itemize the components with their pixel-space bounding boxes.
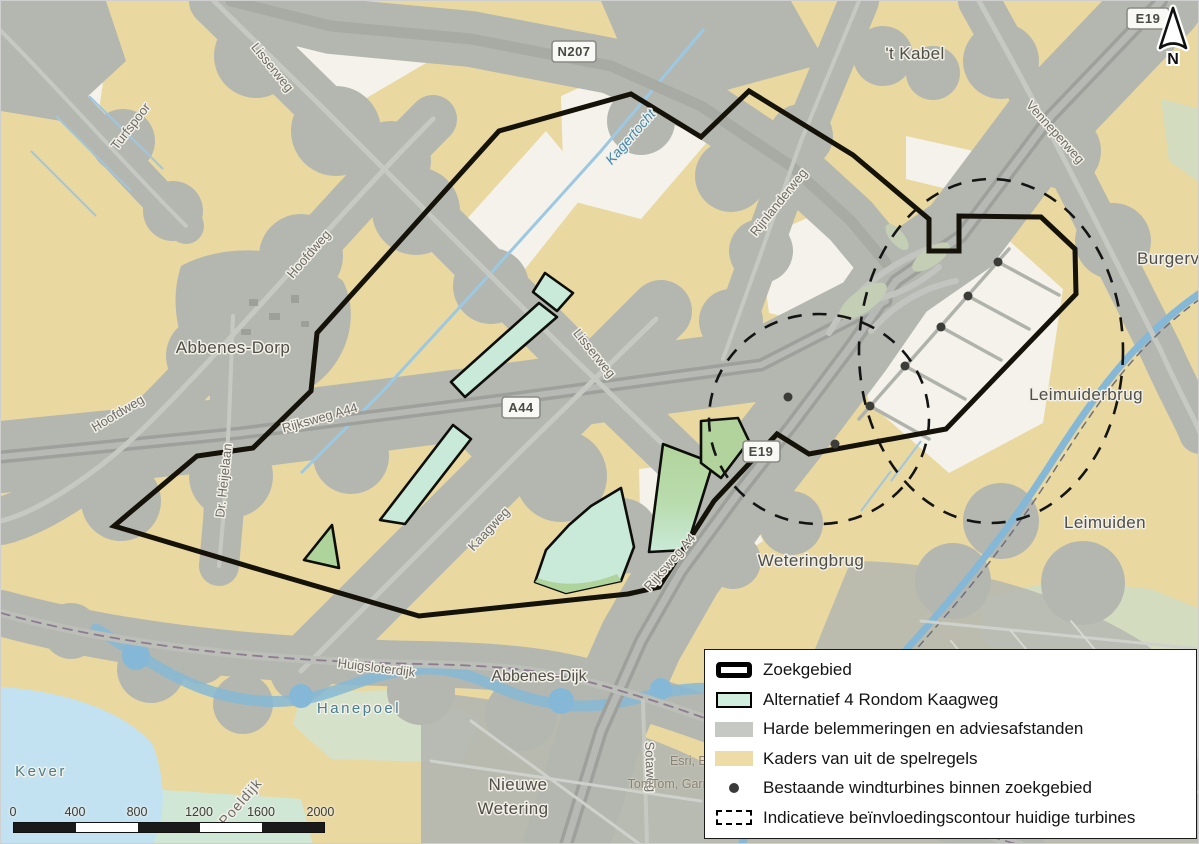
label-kever: Kever [15,763,67,780]
north-arrow: N [1147,4,1199,68]
turbine-dot [866,402,875,411]
label-nieuwe-wetering-1: Nieuwe [488,775,547,794]
scale-tick-label: 1600 [247,805,275,819]
shield-n207: N207 [552,41,596,62]
shield-a44: A44 [502,397,540,418]
turbine-dot [901,362,910,371]
legend-item-turbines: Bestaande windturbines binnen zoekgebied [714,775,1188,801]
scale-tick-label: 400 [65,805,86,819]
legend-label-harde: Harde belemmeringen en adviesafstanden [763,719,1083,739]
legend: ZoekgebiedAlternatief 4 Rondom KaagwegHa… [704,649,1197,839]
label-abbenes-dijk: Abbenes-Dijk [491,668,587,685]
label-nieuwe-wetering-2: Wetering [478,799,549,818]
scale-tick-label: 1200 [185,805,213,819]
attribution-line-2: TomTom, Garm [601,773,713,796]
legend-swatch-kaders [714,751,754,766]
map-figure: N207 A44 E19 E19 't Kabel Abbenes-Dorp L… [0,0,1199,844]
turbine-dot [937,323,946,332]
scale-bar-segments [13,822,325,833]
label-weteringbrug: Weteringbrug [758,551,865,570]
legend-swatch-harde [714,722,754,737]
legend-swatch-turbines [714,783,754,793]
legend-item-alternatief: Alternatief 4 Rondom Kaagweg [714,687,1188,713]
scale-tick-label: 800 [127,805,148,819]
legend-item-harde: Harde belemmeringen en adviesafstanden [714,716,1188,742]
turbine-dot [831,440,840,449]
turbine-dot [964,292,973,301]
label-burgerveen: Burgerveen [1137,249,1199,268]
svg-text:A44: A44 [508,400,534,415]
turbine-dot [784,393,793,402]
label-leimuiden: Leimuiden [1064,513,1146,532]
label-leimuiderbrug: Leimuiderbrug [1029,385,1143,404]
legend-swatch-contour [714,810,754,825]
legend-swatch-alternatief [714,692,754,708]
svg-text:N207: N207 [557,44,590,59]
north-label: N [1167,51,1179,68]
legend-item-kaders: Kaders van uit de spelregels [714,746,1188,772]
svg-text:E19: E19 [749,444,774,459]
label-hanepoel: Hanepoel [317,700,401,717]
legend-label-turbines: Bestaande windturbines binnen zoekgebied [763,778,1092,798]
legend-label-kaders: Kaders van uit de spelregels [763,749,978,769]
scale-bar: 0400800120016002000 m [11,805,356,841]
scale-tick-label: 0 [10,805,17,819]
label-t-kabel: 't Kabel [885,44,944,63]
legend-item-zoekgebied: Zoekgebied [714,657,1188,683]
shield-e19-mid: E19 [743,441,780,462]
legend-swatch-zoekgebied [714,662,754,678]
legend-label-contour: Indicatieve beïnvloedingscontour huidige… [763,808,1135,828]
turbine-dot [994,258,1003,267]
attribution-line-1: Esri, Es [601,750,713,773]
legend-label-zoekgebied: Zoekgebied [763,660,852,680]
label-abbenes-dorp: Abbenes-Dorp [176,338,290,357]
legend-label-alternatief: Alternatief 4 Rondom Kaagweg [763,690,998,710]
attribution: Esri, Es TomTom, Garm [601,750,713,795]
legend-item-contour: Indicatieve beïnvloedingscontour huidige… [714,805,1188,831]
